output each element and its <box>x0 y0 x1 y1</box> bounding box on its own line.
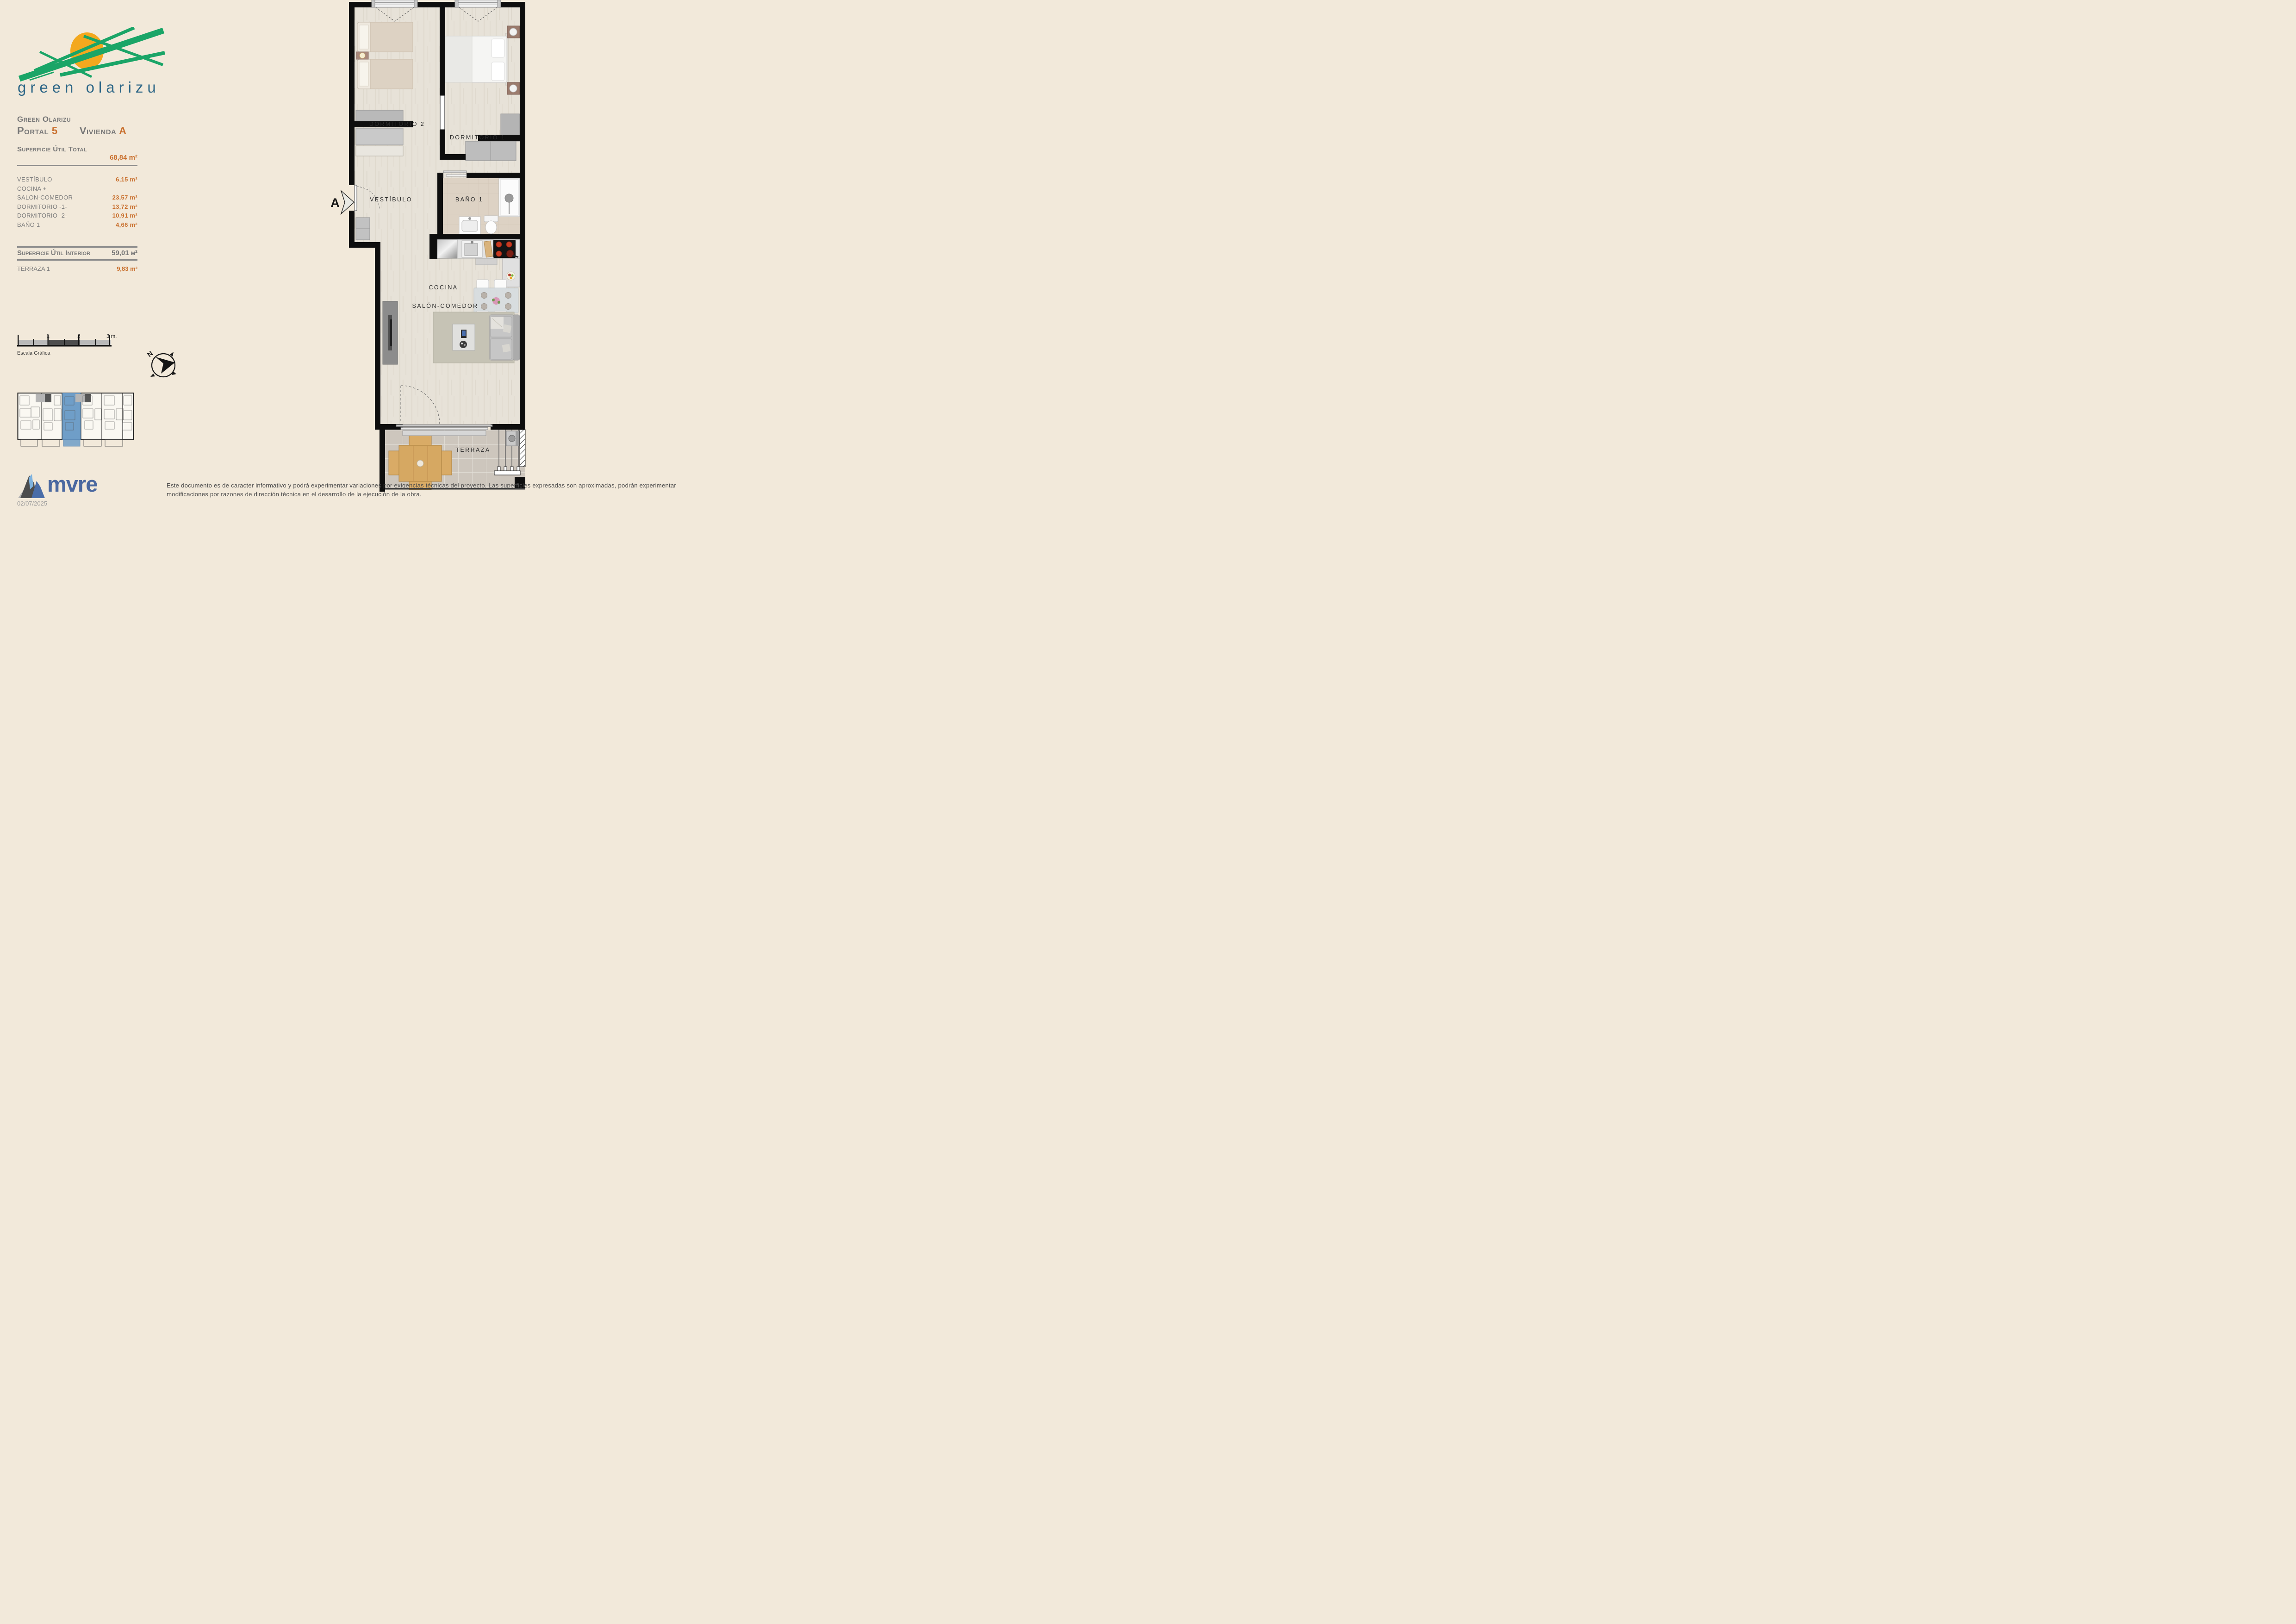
extractor-hood <box>476 258 497 265</box>
date-stamp: 02/07/2025 <box>17 500 47 506</box>
lamp-icon <box>360 53 365 58</box>
plan-sheet: green olarizu Green Olarizu Portal 5 Viv… <box>0 0 716 506</box>
shower <box>499 178 520 217</box>
fruit-plate <box>507 272 515 280</box>
hatched-wall <box>520 430 525 467</box>
water-heater <box>506 431 519 446</box>
room-label-dormitorio-2: DORMITORIO 2 <box>369 121 425 127</box>
double-bed <box>445 33 508 85</box>
room-label-cocina: COCINA <box>429 284 458 291</box>
cooktop <box>493 240 518 258</box>
fridge <box>436 239 457 258</box>
wardrobe <box>356 110 403 121</box>
section-marker-a: A <box>330 196 340 210</box>
sliding-door <box>440 95 445 130</box>
floor-plan: A DORMITORIO 2 DORMITORIO 1 VESTÍBULO BA… <box>0 0 716 506</box>
disclaimer-text: Este documento es de caracter informativ… <box>167 481 713 499</box>
bathroom-sink <box>459 217 480 234</box>
mvre-logo-icon <box>17 474 46 499</box>
sofa <box>490 315 520 360</box>
room-label-terraza: TERRAZA <box>455 447 490 453</box>
coffee-table <box>453 324 475 350</box>
hall-closet <box>356 128 403 145</box>
kitchen-sink <box>462 241 482 257</box>
room-label-dormitorio-1: DORMITORIO 1 <box>450 134 505 141</box>
room-label-vestibulo: VESTÍBULO <box>370 196 412 203</box>
room-label-bano: BAÑO 1 <box>455 196 483 203</box>
room-label-salon: SALÓN-COMEDOR <box>412 302 478 309</box>
mvre-wordmark: mvre <box>47 473 97 495</box>
tv-unit <box>383 301 398 364</box>
section-arrow-icon <box>341 191 354 214</box>
